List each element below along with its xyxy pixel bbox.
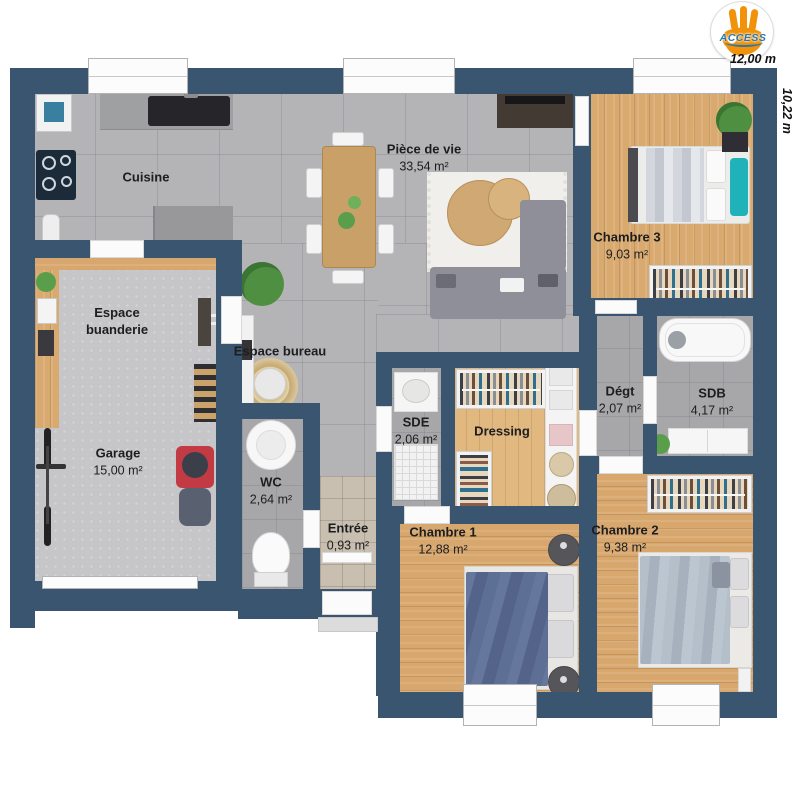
door-buanderie-living [221, 296, 242, 344]
sde-shower [394, 444, 438, 500]
wall [753, 68, 777, 718]
bed-chambre2-gray-pillow [712, 562, 730, 588]
buanderie-door-leaf [198, 298, 211, 346]
bureau-chair [254, 368, 286, 400]
room-label-garage: Garage 15,00 m² [93, 445, 142, 478]
sofa-cushion [500, 278, 524, 292]
sofa-chaise [520, 200, 566, 270]
sde-washbasin-bowl [402, 379, 430, 403]
window-bar [653, 705, 719, 706]
room-label-dressing: Dressing [474, 424, 530, 441]
dining-chair [332, 270, 364, 284]
bed-chambre1-pillow [546, 620, 574, 658]
bed-chambre2-pillow [730, 596, 749, 628]
window [88, 58, 188, 94]
floor-plan: Pièce de vie 33,54 m² Cuisine Chambre 3 … [0, 0, 800, 800]
room-label-sdb: SDB 4,17 m² [691, 385, 733, 418]
door-chambre3-degt [595, 300, 637, 314]
burner-4 [61, 176, 72, 187]
room-label-wc: WC 2,64 m² [250, 474, 292, 507]
wall [10, 68, 35, 628]
tv-screen [505, 96, 565, 104]
dressing-wardrobe-top [457, 370, 545, 408]
bed-chambre3-blanket [646, 148, 704, 222]
dressing-box [549, 366, 573, 386]
dining-chair [306, 224, 322, 254]
sofa-cushion [538, 274, 558, 287]
wc-sink-basin [256, 430, 286, 460]
chambre3-plant-pot [722, 132, 748, 152]
room-label-bureau: Espace bureau [234, 344, 327, 361]
garage-door [42, 576, 198, 589]
bed-chambre3-bench [628, 148, 638, 222]
window [343, 58, 455, 94]
window-bar [634, 76, 730, 77]
floor-corridor-rooms [376, 314, 583, 354]
window-bar [464, 705, 536, 706]
dressing-box-pink [549, 424, 573, 446]
front-door-step [318, 617, 378, 632]
front-door-opening [322, 591, 372, 615]
sdb-vanity-divider [707, 430, 708, 452]
room-label-chambre2: Chambre 2 9,38 m² [591, 522, 658, 555]
toilet-bowl [252, 532, 290, 576]
bicycle-handlebar [36, 464, 66, 469]
room-label-sde: SDE 2,06 m² [395, 414, 437, 447]
bathtub-drain [668, 331, 686, 349]
bed-chambre1-pillow [546, 574, 574, 612]
wardrobe-rod [656, 288, 745, 290]
nightstand-chambre1 [548, 534, 580, 566]
sdb-vanity [668, 428, 748, 454]
dressing-basket [549, 452, 574, 477]
logo-swoosh [725, 38, 763, 47]
bed-chambre2-pillow [730, 558, 749, 590]
bed-chambre3-pillow [706, 188, 726, 221]
washing-machine [37, 298, 57, 324]
wall [376, 520, 400, 696]
dressing-box [549, 390, 573, 410]
nightstand-chambre2 [738, 668, 751, 692]
dining-chair [306, 168, 322, 198]
bicycle-frame [46, 446, 49, 524]
buanderie-plant [36, 272, 56, 292]
bed-chambre1-blanket [466, 572, 548, 686]
kitchen-sink [148, 96, 230, 126]
table-plant [338, 212, 355, 229]
window-bar [344, 76, 454, 77]
wardrobe-rod [462, 389, 539, 391]
door-chambre2 [599, 456, 643, 474]
dining-chair [378, 224, 394, 254]
dimension-height-label: 10,22 m [780, 88, 794, 134]
room-label-chambre1: Chambre 1 12,88 m² [409, 524, 476, 557]
room-label-degt: Dégt 2,07 m² [599, 383, 641, 416]
room-label-piece-de-vie: Pièce de vie 33,54 m² [387, 141, 461, 174]
bureau-desk [240, 315, 254, 417]
wall [441, 358, 455, 522]
door-wc [303, 510, 320, 548]
front-door-leaf [322, 552, 372, 563]
room-label-chambre3: Chambre 3 9,03 m² [593, 229, 660, 262]
burner-3 [42, 177, 56, 191]
window [463, 684, 537, 726]
wall [303, 403, 320, 595]
door-buanderie-kitchen [90, 240, 144, 258]
window [652, 684, 720, 726]
door-chambre1 [404, 506, 450, 524]
table-plant [348, 196, 361, 209]
burner-2 [60, 155, 71, 166]
burner-1 [42, 156, 56, 170]
mower-engine [182, 452, 208, 478]
toilet-tank [254, 572, 288, 587]
window-bar [89, 76, 187, 77]
wall [376, 352, 585, 368]
living-plant [240, 262, 284, 306]
wardrobe-rod [654, 494, 745, 496]
room-label-entree: Entrée 0,93 m² [327, 520, 369, 553]
wardrobe-chambre2 [648, 476, 751, 512]
dining-chair [332, 132, 364, 146]
buanderie-counter [35, 256, 216, 270]
door-sdb [643, 376, 657, 424]
garage-shelf [194, 364, 216, 422]
bed-chambre3-teal-pillow [730, 158, 748, 216]
door-chambre3 [575, 96, 589, 146]
kitchen-appliance-screen [44, 102, 64, 122]
sofa-cushion [436, 274, 456, 288]
nightstand-dot [560, 542, 567, 549]
dimension-width-label: 12,00 m [690, 52, 776, 66]
door-dressing-degt [579, 410, 597, 456]
buanderie-appliance-dark [38, 330, 54, 356]
room-label-buanderie: Espace buanderie [67, 305, 167, 339]
nightstand-dot [560, 676, 567, 683]
door-sde [376, 406, 392, 452]
room-label-cuisine: Cuisine [123, 170, 170, 187]
bed-chambre3-pillow [706, 150, 726, 183]
mower-bag [179, 488, 211, 526]
